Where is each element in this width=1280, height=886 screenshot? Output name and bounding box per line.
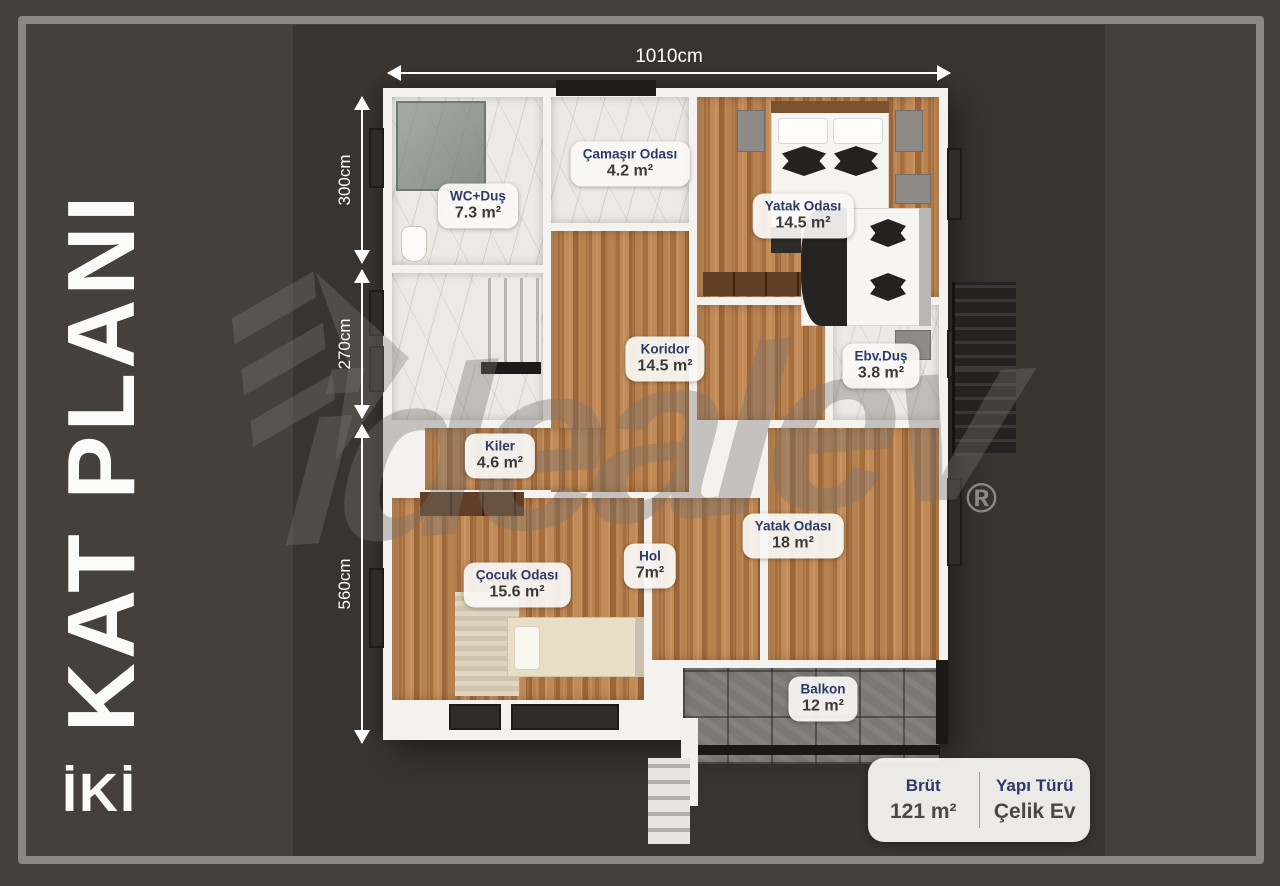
- room-label-camasir-odasi: Çamaşır Odası 4.2 m²: [571, 142, 690, 187]
- shelf-cocuk: [420, 492, 524, 516]
- balcony-railing: [936, 660, 948, 744]
- dimension-arrow-560: [351, 425, 371, 743]
- nightstand: [737, 110, 765, 152]
- page-title: KAT PLANI: [47, 192, 157, 733]
- nightstand: [895, 174, 931, 204]
- window: [511, 704, 619, 730]
- nightstand: [895, 110, 923, 152]
- exterior-staircase: [952, 282, 1016, 456]
- shower-enclosure: [396, 101, 486, 191]
- exterior-steps: [648, 758, 690, 844]
- room-label-yatak-odasi-1: Yatak Odası 14.5 m²: [753, 194, 854, 239]
- window: [369, 568, 384, 648]
- staircase-railing: [481, 362, 541, 374]
- window: [369, 128, 384, 188]
- staircase-steps: [475, 278, 541, 364]
- dimension-arrow-270: [351, 270, 371, 418]
- dimension-arrow-300: [351, 97, 371, 263]
- room-label-wc-dus: WC+Duş 7.3 m²: [438, 184, 518, 229]
- room-label-balkon: Balkon 12 m²: [788, 677, 857, 722]
- room-label-yatak-odasi-2: Yatak Odası 18 m²: [743, 514, 844, 559]
- info-gross-area: Brüt 121 m²: [868, 776, 979, 824]
- window: [369, 346, 384, 392]
- room-label-cocuk-odasi: Çocuk Odası 15.6 m²: [464, 563, 571, 608]
- window: [947, 478, 962, 566]
- toilet: [401, 226, 427, 262]
- window: [369, 290, 384, 336]
- room-label-kiler: Kiler 4.6 m²: [465, 434, 535, 479]
- balcony-railing: [698, 745, 940, 755]
- dimension-arrow-width: [388, 62, 950, 82]
- room-label-hol: Hol 7m²: [624, 544, 676, 589]
- info-build-type: Yapı Türü Çelik Ev: [980, 776, 1091, 824]
- single-bed-cocuk: [507, 617, 644, 677]
- page-subtitle: İKİ: [62, 762, 137, 824]
- info-box: Brüt 121 m² Yapı Türü Çelik Ev: [868, 758, 1090, 842]
- window: [947, 148, 962, 220]
- entry-canopy: [556, 80, 656, 96]
- page-background: idealev ® KAT PLANI İKİ 1010cm 300cm 270…: [0, 0, 1280, 886]
- room-label-koridor: Koridor 14.5 m²: [625, 337, 704, 382]
- window: [449, 704, 501, 730]
- room-label-ebv-dus: Ebv.Duş 3.8 m²: [842, 344, 919, 389]
